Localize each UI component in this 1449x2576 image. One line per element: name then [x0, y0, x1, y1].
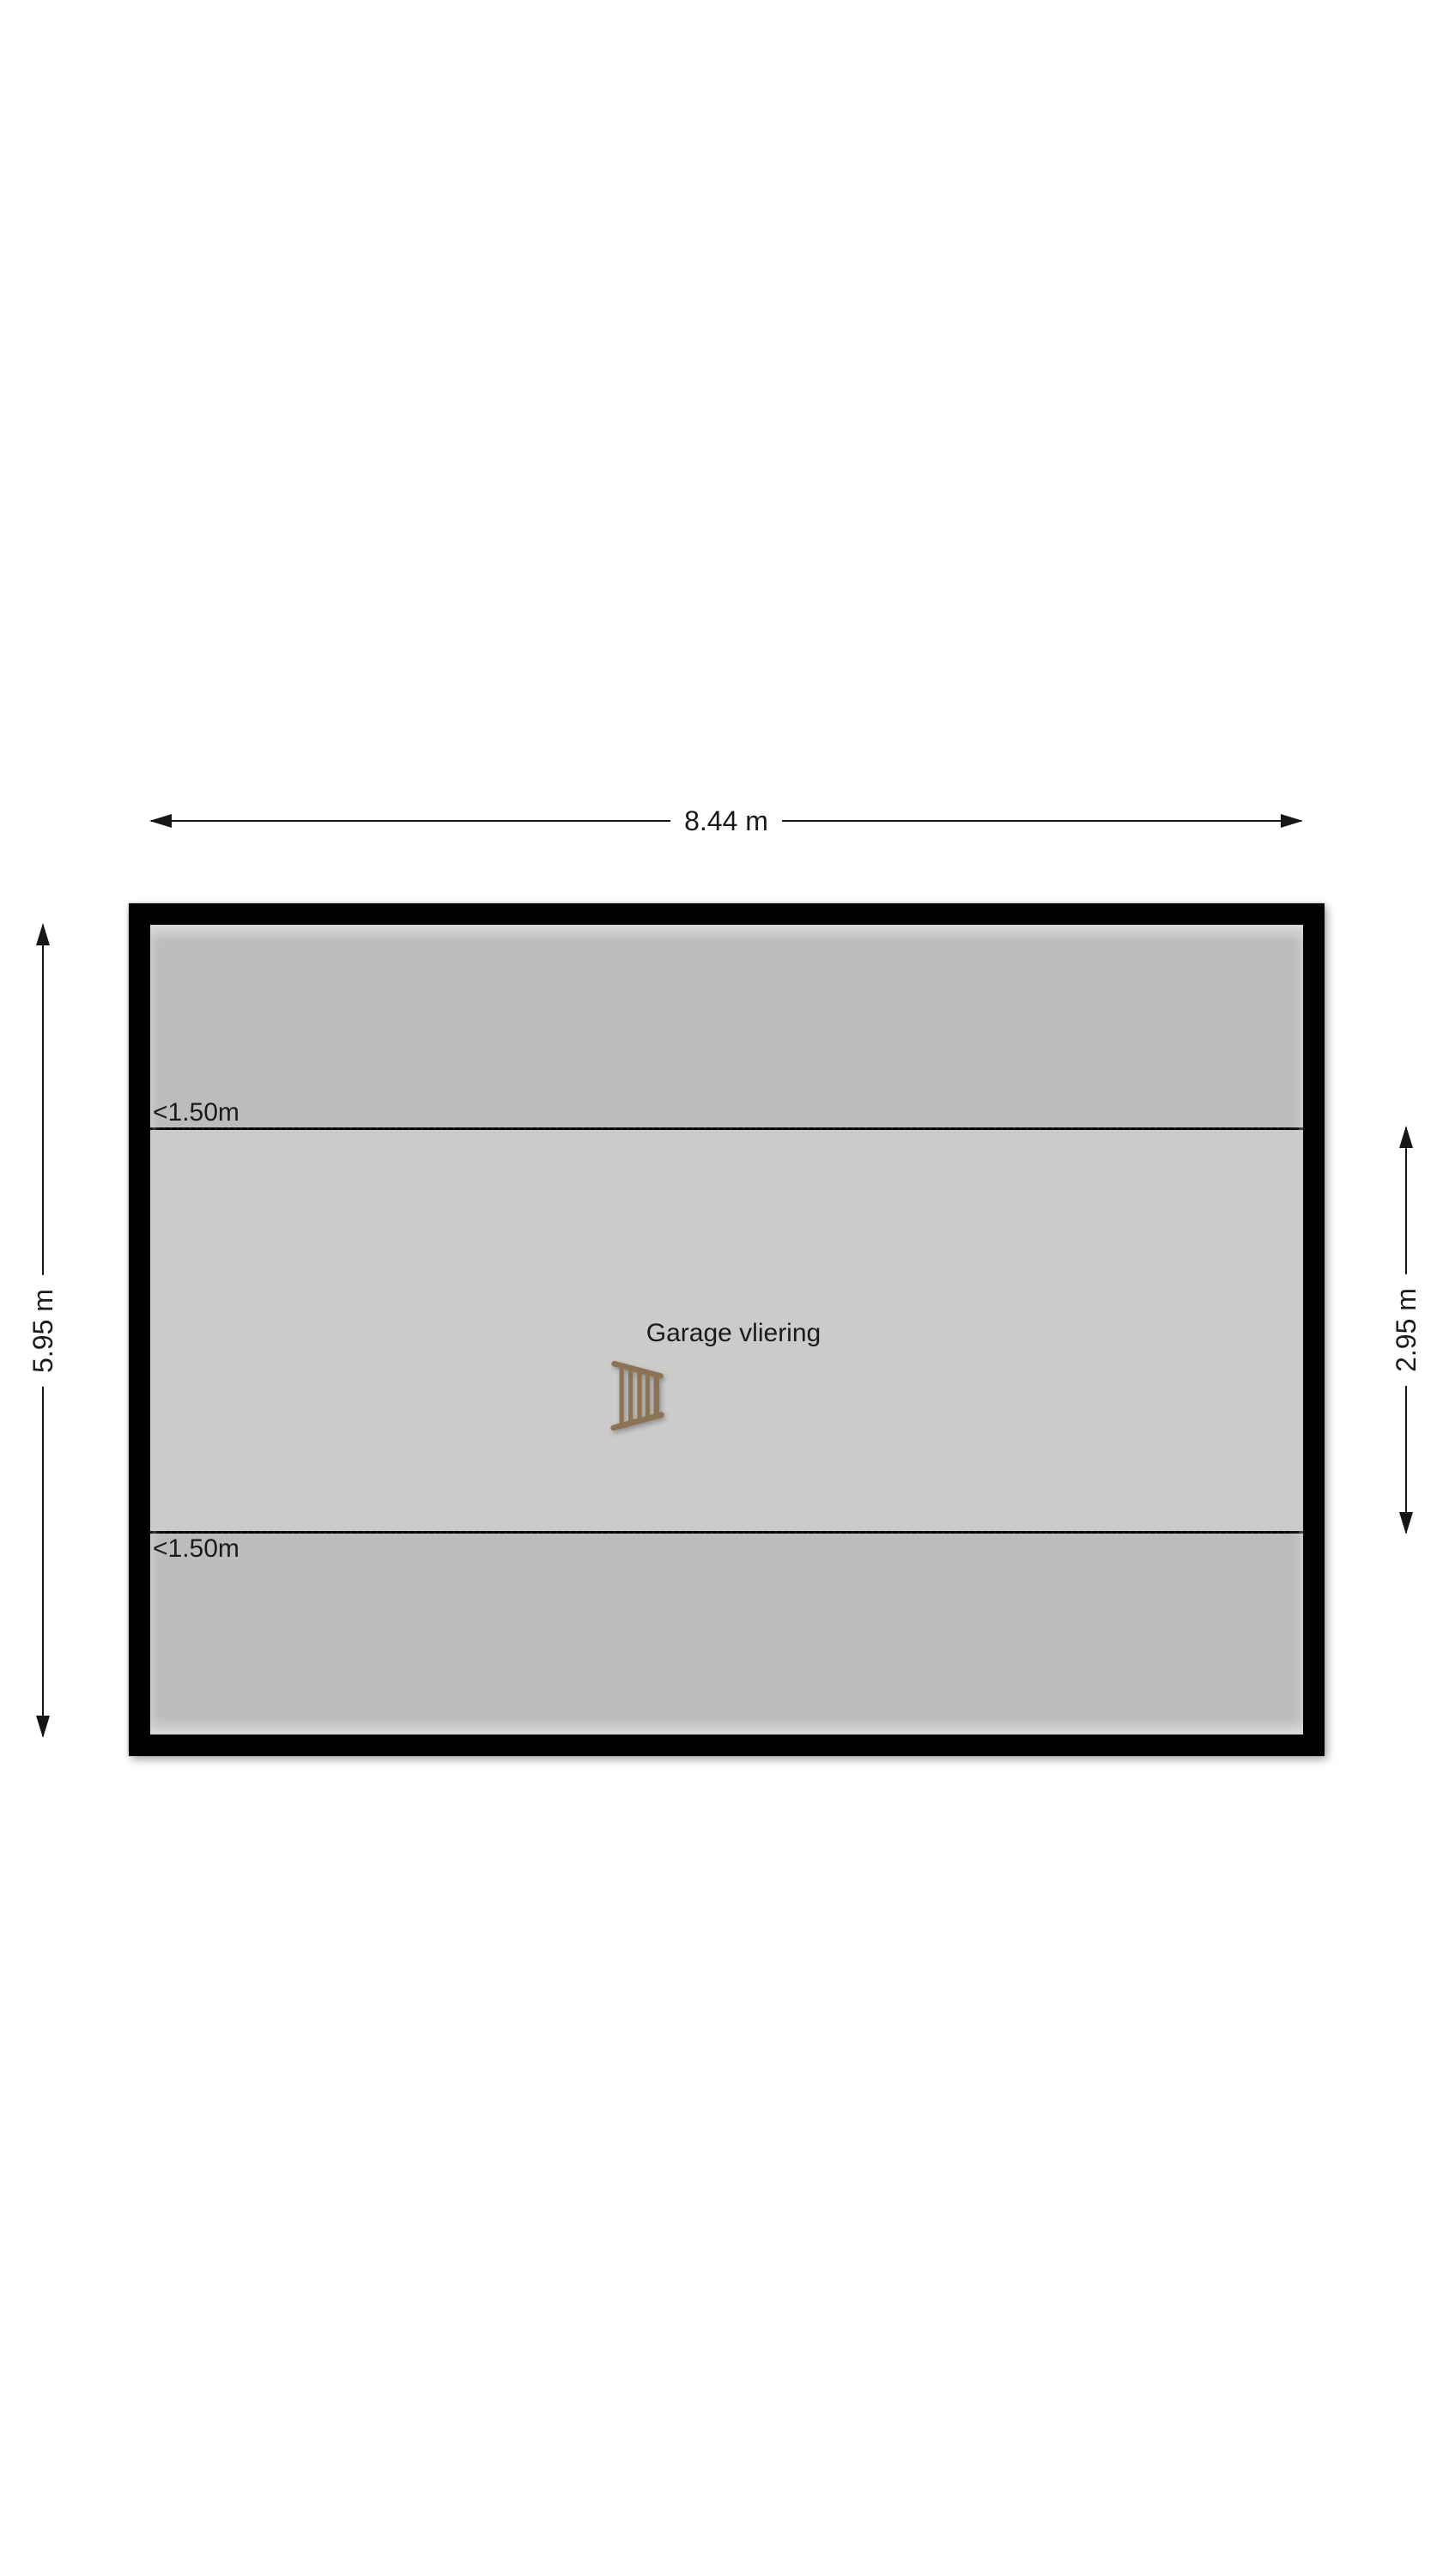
- arrowhead-right-icon: [1281, 814, 1303, 828]
- arrowhead-down-icon: [36, 1716, 50, 1738]
- clearance-label-top: <1.50m: [153, 1098, 239, 1127]
- loft-ladder-icon: [609, 1355, 668, 1437]
- clearance-dotted-line-bottom: [150, 1531, 1303, 1534]
- floorplan-page: 8.44 m 5.95 m 2.95 m <1.50m <1.50m Garag…: [0, 0, 1449, 2576]
- low-clearance-zone-bottom: [150, 1534, 1303, 1735]
- clearance-dotted-line-top: [150, 1127, 1303, 1130]
- dimension-width-label: 8.44 m: [670, 804, 782, 838]
- arrowhead-up-icon: [36, 923, 50, 945]
- dimension-height-label: 5.95 m: [26, 1275, 60, 1387]
- arrowhead-down-icon: [1399, 1512, 1413, 1534]
- floor-plan-interior: <1.50m <1.50m Garage vliering: [150, 925, 1303, 1735]
- arrowhead-up-icon: [1399, 1126, 1413, 1148]
- room-label: Garage vliering: [157, 1319, 1303, 1348]
- dimension-height-line: 5.95 m: [42, 925, 44, 1736]
- dimension-width-line: 8.44 m: [151, 820, 1301, 822]
- low-clearance-zone-top: [150, 925, 1303, 1127]
- arrowhead-left-icon: [149, 814, 172, 828]
- floor-plan: <1.50m <1.50m Garage vliering: [129, 903, 1325, 1756]
- dimension-inner-height-line: 2.95 m: [1405, 1127, 1407, 1533]
- dimension-inner-height-label: 2.95 m: [1389, 1274, 1423, 1386]
- clearance-label-bottom: <1.50m: [153, 1534, 239, 1563]
